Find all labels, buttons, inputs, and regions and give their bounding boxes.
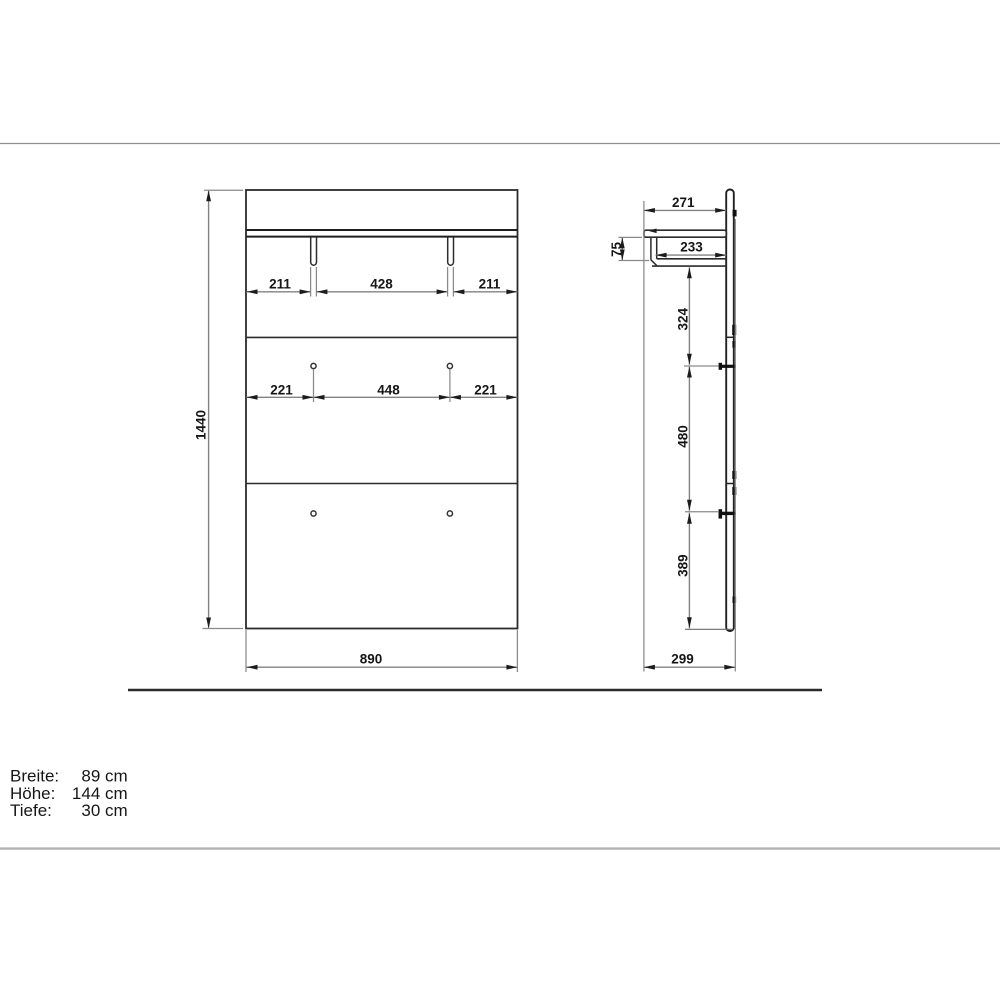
svg-text:448: 448 (377, 382, 400, 397)
svg-text:480: 480 (676, 425, 691, 448)
svg-text:221: 221 (270, 382, 293, 397)
svg-text:cm: cm (100, 801, 127, 820)
svg-text:211: 211 (269, 277, 291, 292)
svg-text:cm: cm (100, 784, 127, 803)
svg-text:233: 233 (680, 240, 703, 255)
svg-text:211: 211 (479, 277, 501, 292)
svg-text:Tiefe:: Tiefe: (10, 801, 52, 820)
svg-text:389: 389 (676, 554, 691, 577)
svg-text:299: 299 (671, 652, 694, 667)
svg-text:75: 75 (609, 242, 624, 258)
svg-text:324: 324 (676, 307, 691, 330)
svg-text:271: 271 (672, 195, 695, 210)
svg-text:890: 890 (360, 652, 383, 667)
svg-text:221: 221 (474, 382, 497, 397)
svg-text:1440: 1440 (193, 410, 208, 440)
svg-text:30: 30 (81, 801, 100, 820)
svg-text:144: 144 (72, 784, 100, 803)
svg-text:89: 89 (81, 767, 100, 786)
svg-text:428: 428 (370, 277, 393, 292)
svg-text:Höhe:: Höhe: (10, 784, 55, 803)
svg-text:Breite:: Breite: (10, 767, 59, 786)
svg-text:cm: cm (100, 767, 127, 786)
